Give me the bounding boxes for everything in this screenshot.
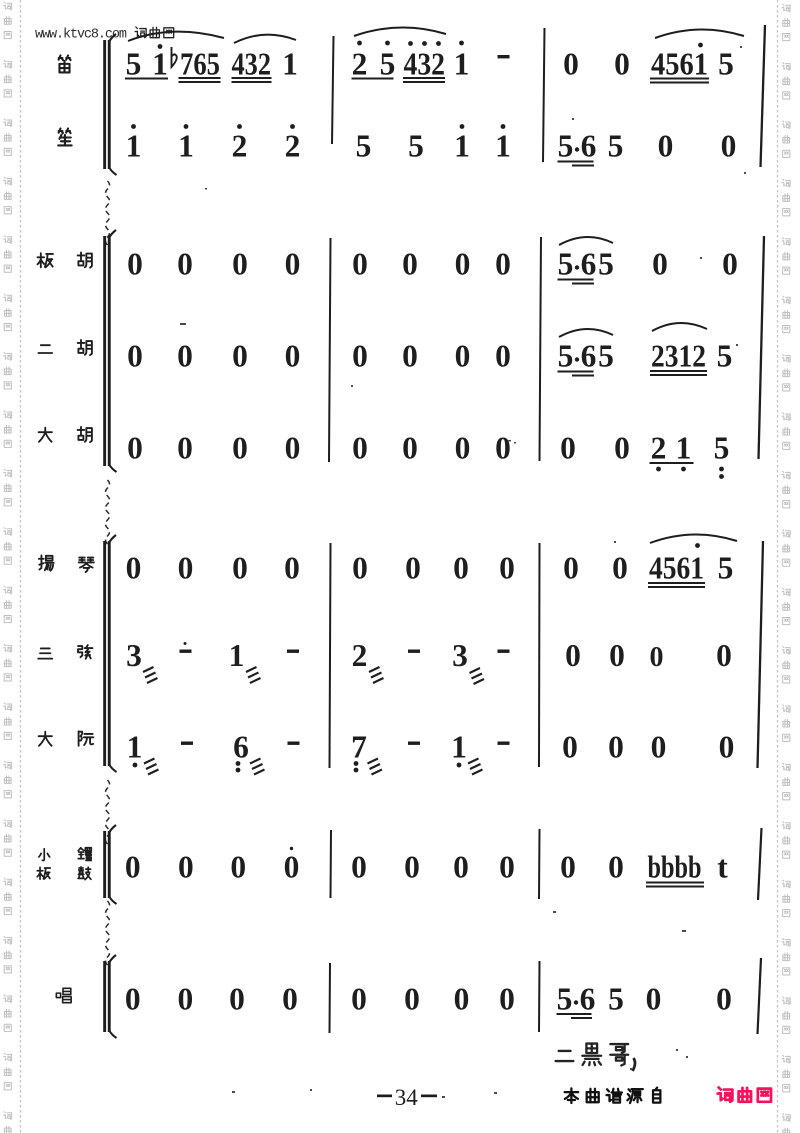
svg-text:0: 0 bbox=[405, 551, 421, 586]
svg-text:0: 0 bbox=[285, 339, 301, 374]
svg-text:0: 0 bbox=[646, 982, 662, 1017]
svg-text:0: 0 bbox=[560, 431, 576, 466]
svg-text:4561: 4561 bbox=[651, 47, 708, 82]
svg-text:1: 1 bbox=[454, 129, 470, 164]
svg-text:5: 5 bbox=[557, 982, 573, 1017]
svg-text:1: 1 bbox=[152, 47, 168, 82]
svg-text:1: 1 bbox=[495, 129, 511, 164]
svg-text:0: 0 bbox=[716, 638, 732, 673]
svg-text:0: 0 bbox=[352, 551, 368, 586]
svg-text:0: 0 bbox=[495, 339, 511, 374]
svg-text:0: 0 bbox=[455, 431, 471, 466]
svg-text:0: 0 bbox=[351, 982, 367, 1017]
svg-text:0: 0 bbox=[177, 339, 193, 374]
svg-text:0: 0 bbox=[612, 551, 628, 586]
svg-text:0: 0 bbox=[126, 551, 142, 586]
svg-text:4561: 4561 bbox=[649, 551, 704, 586]
svg-text:0: 0 bbox=[402, 431, 418, 466]
svg-text:0: 0 bbox=[282, 982, 298, 1017]
svg-text:0: 0 bbox=[404, 850, 420, 885]
svg-text:0: 0 bbox=[454, 982, 470, 1017]
svg-text:0: 0 bbox=[453, 551, 469, 586]
svg-text:0: 0 bbox=[560, 850, 576, 885]
svg-text:5: 5 bbox=[558, 247, 574, 282]
svg-text:2312: 2312 bbox=[651, 339, 706, 374]
svg-text:0: 0 bbox=[351, 850, 367, 885]
svg-text:6: 6 bbox=[581, 339, 597, 374]
svg-text:432: 432 bbox=[232, 47, 272, 82]
svg-text:5: 5 bbox=[608, 129, 624, 164]
svg-text:5: 5 bbox=[718, 551, 734, 586]
svg-text:5: 5 bbox=[408, 129, 424, 164]
svg-text:0: 0 bbox=[127, 247, 143, 282]
svg-text:3: 3 bbox=[126, 638, 142, 673]
svg-text:0: 0 bbox=[284, 850, 300, 885]
svg-text:0: 0 bbox=[565, 638, 581, 673]
svg-text:0: 0 bbox=[232, 551, 248, 586]
svg-text:0: 0 bbox=[125, 850, 141, 885]
svg-text:2: 2 bbox=[232, 129, 248, 164]
svg-text:5: 5 bbox=[718, 47, 734, 82]
svg-text:0: 0 bbox=[722, 247, 738, 282]
svg-text:0: 0 bbox=[719, 730, 735, 765]
svg-text:2: 2 bbox=[352, 638, 368, 673]
svg-text:0: 0 bbox=[563, 551, 579, 586]
svg-text:2: 2 bbox=[285, 129, 301, 164]
svg-text:0: 0 bbox=[352, 247, 368, 282]
svg-text:1: 1 bbox=[451, 730, 467, 765]
svg-text:1: 1 bbox=[229, 638, 245, 673]
svg-text:0: 0 bbox=[404, 982, 420, 1017]
svg-text:0: 0 bbox=[402, 247, 418, 282]
svg-text:5: 5 bbox=[558, 339, 574, 374]
svg-text:0: 0 bbox=[499, 982, 515, 1017]
svg-text:1: 1 bbox=[282, 47, 298, 82]
svg-text:3: 3 bbox=[452, 638, 468, 673]
svg-text:0: 0 bbox=[177, 247, 193, 282]
svg-text:0: 0 bbox=[716, 982, 732, 1017]
svg-text:0: 0 bbox=[455, 247, 471, 282]
svg-text:0: 0 bbox=[178, 551, 194, 586]
svg-text:0: 0 bbox=[563, 47, 579, 82]
svg-text:2: 2 bbox=[352, 47, 368, 82]
svg-text:432: 432 bbox=[404, 47, 446, 82]
svg-text:0: 0 bbox=[658, 129, 674, 164]
svg-text:765: 765 bbox=[180, 47, 220, 82]
svg-text:0: 0 bbox=[495, 247, 511, 282]
svg-text:6: 6 bbox=[581, 129, 597, 164]
svg-text:0: 0 bbox=[178, 850, 194, 885]
svg-text:5: 5 bbox=[356, 129, 372, 164]
svg-text:5: 5 bbox=[558, 129, 574, 164]
svg-text:0: 0 bbox=[721, 129, 737, 164]
svg-text:0: 0 bbox=[453, 850, 469, 885]
svg-text:0: 0 bbox=[232, 431, 248, 466]
svg-text:0: 0 bbox=[495, 431, 511, 466]
svg-text:0: 0 bbox=[232, 339, 248, 374]
svg-text:5: 5 bbox=[126, 47, 142, 82]
svg-text:5: 5 bbox=[598, 247, 614, 282]
svg-text:0: 0 bbox=[352, 431, 368, 466]
svg-text:0: 0 bbox=[230, 850, 246, 885]
svg-text:0: 0 bbox=[499, 551, 515, 586]
svg-text:0: 0 bbox=[614, 47, 630, 82]
svg-text:bbbb: bbbb bbox=[648, 850, 702, 885]
svg-text:0: 0 bbox=[608, 850, 624, 885]
svg-text:0: 0 bbox=[652, 247, 668, 282]
svg-text:0: 0 bbox=[284, 551, 300, 586]
svg-text:0: 0 bbox=[352, 339, 368, 374]
svg-text:0: 0 bbox=[609, 638, 625, 673]
svg-text:5: 5 bbox=[717, 339, 733, 374]
svg-text:0: 0 bbox=[127, 431, 143, 466]
svg-text:0: 0 bbox=[177, 431, 193, 466]
svg-text:5: 5 bbox=[608, 982, 624, 1017]
svg-text:0: 0 bbox=[178, 982, 194, 1017]
svg-text:7: 7 bbox=[351, 730, 367, 765]
svg-text:0: 0 bbox=[402, 339, 418, 374]
svg-text:0: 0 bbox=[127, 339, 143, 374]
svg-text:5: 5 bbox=[380, 47, 396, 82]
svg-text:0: 0 bbox=[285, 431, 301, 466]
svg-text:6: 6 bbox=[580, 982, 596, 1017]
svg-text:1: 1 bbox=[126, 129, 142, 164]
svg-text:0: 0 bbox=[562, 730, 578, 765]
svg-text:0: 0 bbox=[229, 982, 245, 1017]
svg-text:0: 0 bbox=[232, 247, 248, 282]
svg-text:0: 0 bbox=[499, 850, 515, 885]
svg-text:0: 0 bbox=[608, 730, 624, 765]
svg-text:1: 1 bbox=[676, 431, 692, 466]
svg-text:1: 1 bbox=[127, 730, 143, 765]
svg-text:6: 6 bbox=[581, 247, 597, 282]
svg-text:1: 1 bbox=[454, 47, 470, 82]
svg-text:5: 5 bbox=[714, 431, 730, 466]
svg-text:0: 0 bbox=[650, 642, 664, 673]
svg-text:0: 0 bbox=[125, 982, 141, 1017]
svg-text:0: 0 bbox=[614, 431, 630, 466]
svg-text:34: 34 bbox=[395, 1085, 419, 1110]
svg-text:0: 0 bbox=[285, 247, 301, 282]
svg-text:t: t bbox=[717, 850, 728, 885]
svg-text:2: 2 bbox=[651, 431, 667, 466]
svg-text:6: 6 bbox=[233, 730, 249, 765]
svg-text:0: 0 bbox=[455, 339, 471, 374]
svg-text:1: 1 bbox=[178, 129, 194, 164]
svg-text:5: 5 bbox=[598, 339, 614, 374]
svg-text:0: 0 bbox=[651, 730, 667, 765]
